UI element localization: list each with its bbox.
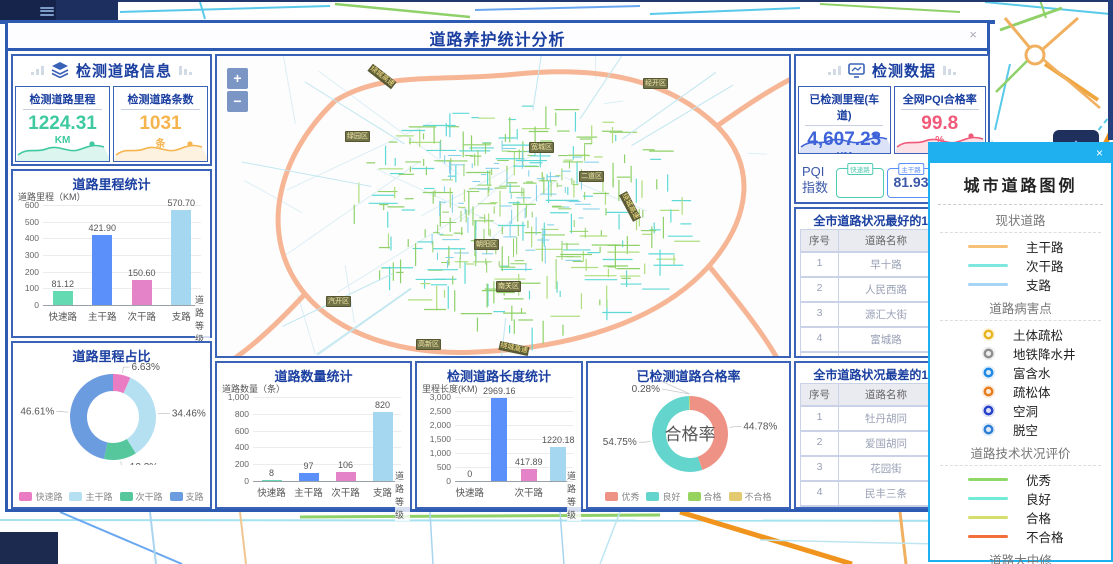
y-tick: 300 (13, 250, 39, 260)
y-tick: 0 (13, 300, 39, 310)
donut-label: 0.19% (620, 381, 648, 382)
x-tick: 主干路 (290, 485, 327, 499)
legend-section-heading: 道路病害点 (940, 294, 1101, 321)
stat-label: 全网PQI合格率 (901, 91, 979, 110)
x-axis-name: 道路等级 (567, 469, 581, 521)
dashboard-titlebar: 道路养护统计分析 × (8, 23, 987, 51)
stat-value: 1224.31 (16, 113, 109, 135)
legend-label: 良好 (1026, 489, 1051, 508)
x-tick: 快速路 (43, 309, 83, 323)
y-tick: 200 (13, 267, 39, 277)
legend-label: 空洞 (1013, 401, 1038, 420)
map-zoom-in-button[interactable]: + (227, 68, 248, 89)
donut-label: 0.28% (632, 384, 660, 395)
district-label: 南关区 (496, 281, 521, 292)
legend-item[interactable]: 良好 (646, 490, 680, 503)
legend-item: 次干路 (930, 256, 1111, 275)
line-swatch (968, 283, 1008, 286)
legend-item[interactable]: 支路 (170, 490, 204, 503)
bar[interactable] (92, 235, 112, 305)
y-tick: 600 (217, 426, 249, 436)
legend-item[interactable]: 次干路 (120, 490, 163, 503)
bar[interactable] (491, 398, 507, 481)
y-tick: 1,000 (417, 448, 451, 458)
donut-label: 44.78% (743, 421, 777, 432)
disease-point-icon (982, 347, 995, 360)
donut-label: 6.63% (132, 362, 160, 373)
legend-label: 脱空 (1013, 420, 1038, 439)
page-title: 道路养护统计分析 (8, 26, 987, 50)
legend-title: 城市道路图例 (938, 172, 1103, 205)
disease-point-icon (982, 404, 995, 417)
window-right-edge (1108, 0, 1113, 140)
chart-legend: 优秀良好合格不合格 (588, 490, 789, 503)
panel-count-bar: 道路数量统计 道路数量（条）02004006008001,0008快速路97主干… (215, 361, 412, 509)
district-label: 朝阳区 (474, 239, 499, 250)
panel-detect-title: 检测数据 (872, 60, 936, 81)
district-label: 汽开区 (326, 296, 351, 307)
stat-card: 检测道路条数 1031 条 (113, 86, 208, 162)
count-bar-chart: 道路数量（条）02004006008001,0008快速路97主干路106次干路… (217, 381, 410, 507)
sparkline (114, 137, 208, 161)
layers-icon (51, 62, 69, 78)
panel-road-info-header: 检测道路信息 (13, 56, 210, 84)
x-tick: 次干路 (514, 485, 544, 499)
header-deco-left (31, 66, 44, 75)
legend-item: 主干路 (930, 237, 1111, 256)
stat-card: 检测道路里程 1224.31 KM (15, 86, 110, 162)
panel-detect-header: 检测数据 (796, 56, 988, 84)
district-label: 绿园区 (345, 131, 370, 142)
y-tick: 500 (417, 462, 451, 472)
bar-value-label: 2969.16 (477, 386, 523, 396)
legend-item: 富含水 (930, 363, 1111, 382)
x-tick: 快速路 (253, 485, 290, 499)
legend-label: 主干路 (1026, 237, 1064, 256)
bar-value-label: 1220.18 (536, 435, 582, 445)
donut-label: 34.46% (172, 408, 206, 419)
legend-item: 良好 (930, 489, 1111, 508)
toolbar-segment (56, 0, 118, 22)
district-label: 二道区 (579, 171, 604, 182)
bar-value-label: 81.12 (35, 279, 91, 289)
legend-item[interactable]: 主干路 (69, 490, 112, 503)
window-top-edge (0, 0, 1113, 2)
stat-card: 已检测里程(车道) 4,607.23 KM (798, 86, 891, 154)
stat-label: 检测道路条数 (121, 91, 201, 110)
bar[interactable] (299, 473, 319, 481)
header-deco-left (828, 66, 841, 75)
disease-point-icon (982, 328, 995, 341)
district-label: 经开区 (643, 78, 668, 89)
donut-label: 54.75% (603, 437, 637, 448)
x-tick: 主干路 (83, 309, 123, 323)
line-swatch (968, 245, 1008, 248)
legend-label: 次干路 (1026, 256, 1064, 275)
legend-item: 优秀 (930, 470, 1111, 489)
x-axis-name: 道路等级 (195, 293, 210, 345)
legend-item: 土体疏松 (930, 325, 1111, 344)
legend-label: 富含水 (1013, 363, 1051, 382)
legend-section-heading: 现状道路 (940, 206, 1101, 233)
disease-point-icon (982, 366, 995, 379)
y-tick: 0 (417, 476, 451, 486)
close-icon[interactable]: × (969, 27, 977, 42)
bar-value-label: 421.90 (75, 223, 131, 233)
x-tick: 次干路 (327, 485, 364, 499)
legend-label: 优秀 (1026, 470, 1051, 489)
line-swatch (968, 516, 1008, 519)
road-info-cards: 检测道路里程 1224.31 KM 检测道路条数 1031 条 (15, 86, 208, 162)
legend-label: 地铁降水井 (1013, 344, 1076, 363)
y-tick: 2,500 (417, 406, 451, 416)
legend-section-heading: 道路大中修 (940, 546, 1101, 564)
district-label: 宽城区 (529, 142, 554, 153)
legend-item: 疏松体 (930, 382, 1111, 401)
sparkline (799, 129, 891, 153)
donut-label: 46.61% (20, 407, 54, 418)
pqi-box-快速路: 快速路 (836, 168, 884, 198)
map-zoom-out-button[interactable]: − (227, 91, 248, 112)
y-tick: 400 (13, 233, 39, 243)
bar[interactable] (262, 480, 282, 481)
mileage-bar-chart: 道路里程（KM）010020030040050060081.12快速路421.9… (13, 189, 210, 336)
bar[interactable] (373, 412, 393, 481)
stat-value: 1031 (114, 113, 207, 135)
legend-section-heading: 道路技术状况评价 (940, 439, 1101, 466)
road-network-map[interactable] (217, 56, 791, 358)
bar[interactable] (336, 472, 356, 481)
legend-label: 支路 (1026, 275, 1051, 294)
legend-item[interactable]: 不合格 (729, 490, 772, 503)
donut-label: 12.3% (130, 462, 158, 465)
legend-item: 不合格 (930, 527, 1111, 546)
panel-pass-rate-pie: 已检测道路合格率 44.78%54.75%0.28%0.19%合格率优秀良好合格… (586, 361, 791, 509)
length-bar-chart: 里程长度(KM)05001,0001,5002,0002,5003,0000快速… (417, 381, 581, 507)
panel-road-info-title: 检测道路信息 (76, 60, 172, 81)
legend-item[interactable]: 优秀 (605, 490, 639, 503)
panel-length-bar: 检测道路长度统计 里程长度(KM)05001,0001,5002,0002,50… (415, 361, 583, 509)
top-left-toolbar (0, 0, 118, 22)
y-tick: 2,000 (417, 420, 451, 430)
y-tick: 400 (217, 442, 249, 452)
legend-item[interactable]: 合格 (688, 490, 722, 503)
disease-point-icon (982, 423, 995, 436)
legend-item: 脱空 (930, 420, 1111, 439)
bar-value-label: 417.89 (506, 457, 552, 467)
pqi-box-label: 快速路 (847, 163, 873, 175)
sparkline (16, 137, 110, 161)
bar-value-label: 820 (356, 400, 409, 410)
panel-mileage-bar: 道路里程统计 道路里程（KM）010020030040050060081.12快… (11, 169, 212, 338)
legend-close-icon[interactable]: × (1096, 146, 1103, 160)
y-tick: 600 (13, 200, 39, 210)
city-map-panel[interactable]: 绿园区宽城区经开区二道区朝阳区南关区汽开区高新区绕城高速绕城高速绕城高速 + − (215, 54, 791, 358)
panel-mileage-pie: 道路里程占比 6.63%34.46%12.3%46.61%快速路主干路次干路支路 (11, 341, 212, 509)
y-tick: 3,000 (417, 392, 451, 402)
pass-rate-donut-chart: 44.78%54.75%0.28%0.19%合格率优秀良好合格不合格 (588, 381, 789, 507)
x-tick: 快速路 (455, 485, 485, 499)
y-tick: 800 (217, 409, 249, 419)
y-tick: 1,000 (217, 392, 249, 402)
y-tick: 1,500 (417, 434, 451, 444)
legend-label: 不合格 (1026, 527, 1064, 546)
donut-slice[interactable] (70, 374, 113, 459)
legend-label: 疏松体 (1013, 382, 1051, 401)
district-label: 高新区 (416, 339, 441, 350)
bar[interactable] (53, 291, 73, 305)
disease-point-icon (982, 385, 995, 398)
bar[interactable] (521, 469, 537, 481)
chart-legend: 快速路主干路次干路支路 (13, 490, 210, 503)
mileage-donut-chart: 6.63%34.46%12.3%46.61%快速路主干路次干路支路 (13, 361, 210, 507)
panel-road-info: 检测道路信息 检测道路里程 1224.31 KM 检测道路条数 1031 条 (11, 54, 212, 166)
x-axis-name: 道路等级 (395, 469, 410, 521)
line-swatch (968, 264, 1008, 267)
dashboard-window: 道路养护统计分析 × 检测道路信息 检测道路里程 1224.31 KM 检测道路… (5, 20, 990, 512)
legend-item: 地铁降水井 (930, 344, 1111, 363)
legend-item: 支路 (930, 275, 1111, 294)
line-swatch (968, 497, 1008, 500)
bar-value-label: 150.60 (114, 268, 170, 278)
stat-label: 已检测里程(车道) (805, 91, 883, 126)
legend-item[interactable]: 快速路 (19, 490, 62, 503)
legend-label: 土体疏松 (1013, 325, 1063, 344)
legend-item: 空洞 (930, 401, 1111, 420)
bar-value-label: 106 (319, 460, 372, 470)
bar[interactable] (132, 280, 152, 305)
bar-value-label: 0 (447, 469, 493, 479)
line-swatch (968, 478, 1008, 481)
bar[interactable] (550, 447, 566, 481)
map-legend-panel: × 城市道路图例 现状道路主干路次干路支路道路病害点土体疏松地铁降水井富含水疏松… (928, 142, 1113, 562)
legend-header: × (930, 144, 1111, 163)
stat-label: 检测道路里程 (23, 91, 103, 110)
legend-body: 现状道路主干路次干路支路道路病害点土体疏松地铁降水井富含水疏松体空洞脱空道路技术… (930, 206, 1111, 556)
menu-icon[interactable] (40, 5, 54, 17)
y-tick: 500 (13, 217, 39, 227)
legend-item: 合格 (930, 508, 1111, 527)
legend-label: 合格 (1026, 508, 1051, 527)
donut-center-text: 合格率 (665, 425, 716, 444)
x-tick: 次干路 (122, 309, 162, 323)
line-swatch (968, 535, 1008, 538)
monitor-icon (848, 63, 865, 78)
pqi-index-label: PQI 指数 (802, 164, 828, 196)
bar[interactable] (171, 210, 191, 305)
header-deco-right (179, 66, 192, 75)
header-deco-right (943, 66, 956, 75)
bar-value-label: 570.70 (154, 198, 210, 208)
